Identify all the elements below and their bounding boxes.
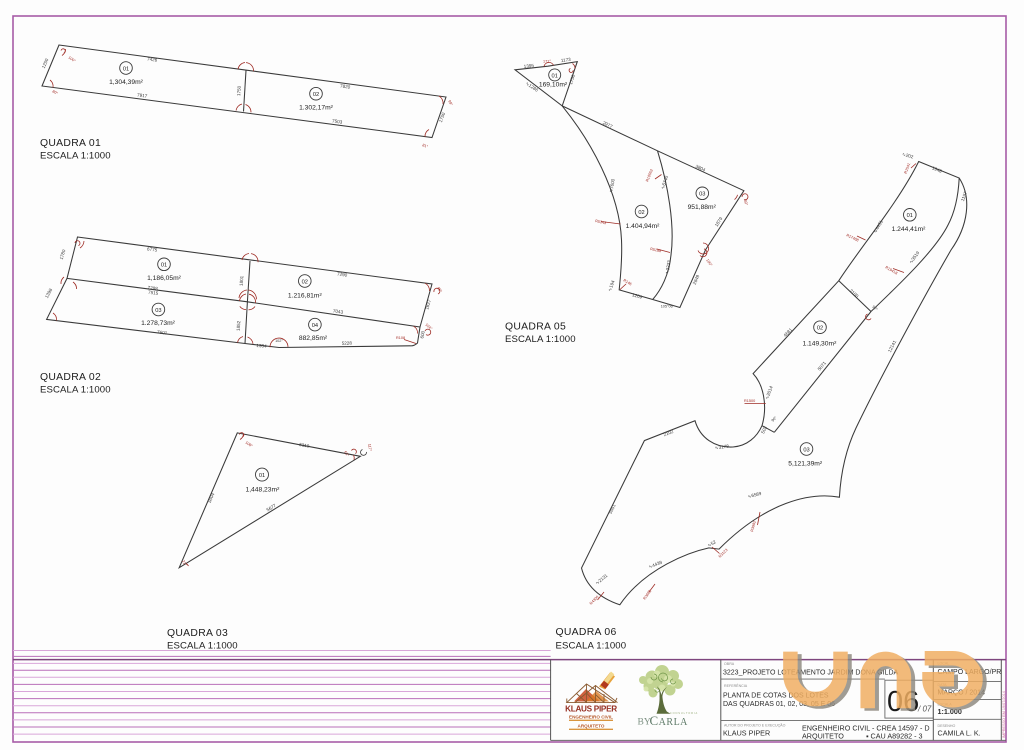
svg-text:1.149,30m²: 1.149,30m² xyxy=(802,341,837,348)
svg-text:1,186,05m²: 1,186,05m² xyxy=(147,275,182,282)
svg-text:1750: 1750 xyxy=(236,85,242,96)
svg-text:1.244,41m²: 1.244,41m² xyxy=(892,226,927,233)
svg-text:AUTOR DO PROJETO E EXECUÇÃO: AUTOR DO PROJETO E EXECUÇÃO xyxy=(724,723,786,728)
svg-text:01: 01 xyxy=(259,473,265,479)
svg-text:951,88m²: 951,88m² xyxy=(688,204,717,211)
svg-text:102°: 102° xyxy=(275,339,283,343)
svg-text:R1500: R1500 xyxy=(744,399,755,403)
svg-text:▪ CAU A89282 - 3: ▪ CAU A89282 - 3 xyxy=(866,732,923,741)
svg-text:1801: 1801 xyxy=(239,275,245,286)
svg-text:01: 01 xyxy=(161,263,167,269)
svg-text:02: 02 xyxy=(302,279,308,285)
svg-text:CONSULTORIA: CONSULTORIA xyxy=(670,711,698,715)
svg-text:QUADRA 05: QUADRA 05 xyxy=(505,322,566,333)
svg-text:04: 04 xyxy=(312,323,318,329)
svg-text:03: 03 xyxy=(155,308,161,314)
svg-text:105°06': 105°06' xyxy=(661,305,674,309)
svg-text:ESCALA 1:1000: ESCALA 1:1000 xyxy=(40,385,111,396)
svg-text:1,304,39m²: 1,304,39m² xyxy=(109,79,144,86)
svg-text:REFERÊNCIA: REFERÊNCIA xyxy=(724,683,748,688)
svg-text:1.302,17m²: 1.302,17m² xyxy=(299,105,334,112)
svg-text:02: 02 xyxy=(638,210,644,216)
svg-text:1.216,81m²: 1.216,81m² xyxy=(288,293,323,300)
svg-text:01: 01 xyxy=(552,73,558,79)
svg-text:ARQUITETO: ARQUITETO xyxy=(802,732,844,741)
svg-text:1334: 1334 xyxy=(256,343,267,349)
svg-text:03: 03 xyxy=(699,192,705,198)
svg-text:171°: 171° xyxy=(543,60,551,64)
svg-text:CAMILA L. K.: CAMILA L. K. xyxy=(938,729,981,738)
svg-text:QUADRA 06: QUADRA 06 xyxy=(556,627,617,638)
svg-text:KLAUS PIPER: KLAUS PIPER xyxy=(565,705,617,714)
svg-text:KLAUS PIPER: KLAUS PIPER xyxy=(723,729,770,738)
svg-text:882,85m²: 882,85m² xyxy=(299,335,328,342)
svg-text:OBRA: OBRA xyxy=(724,662,735,666)
svg-text:ESCALA 1:1000: ESCALA 1:1000 xyxy=(167,641,238,652)
svg-text:01: 01 xyxy=(123,66,129,72)
svg-text:1852: 1852 xyxy=(236,320,242,331)
svg-text:5,121,39m²: 5,121,39m² xyxy=(788,461,823,468)
svg-text:ENGENHEIRO CIVIL: ENGENHEIRO CIVIL xyxy=(569,715,613,720)
svg-text:ESCALA 1:1000: ESCALA 1:1000 xyxy=(505,334,576,345)
svg-text:01: 01 xyxy=(907,213,913,219)
svg-text:ARQUITETO: ARQUITETO xyxy=(578,723,605,728)
svg-text:/ 07: / 07 xyxy=(917,705,932,714)
svg-text:1,448,23m²: 1,448,23m² xyxy=(245,487,280,494)
svg-text:IMPRESSO EM 19/07/2014: IMPRESSO EM 19/07/2014 xyxy=(1002,691,1006,738)
svg-text:QUADRA 03: QUADRA 03 xyxy=(167,628,228,639)
svg-text:ESCALA 1:1000: ESCALA 1:1000 xyxy=(556,641,627,652)
svg-text:R108: R108 xyxy=(396,336,405,340)
svg-text:03: 03 xyxy=(803,447,809,453)
svg-text:1.278,73m²: 1.278,73m² xyxy=(141,320,176,327)
svg-text:02: 02 xyxy=(817,326,823,332)
svg-text:169,10m²: 169,10m² xyxy=(539,82,568,89)
svg-text:1.404,94m²: 1.404,94m² xyxy=(626,223,661,230)
svg-text:5228: 5228 xyxy=(342,341,353,346)
svg-text:DESENHO: DESENHO xyxy=(938,724,956,728)
svg-text:QUADRA 01: QUADRA 01 xyxy=(40,138,101,149)
svg-text:ESCALA 1:1000: ESCALA 1:1000 xyxy=(40,151,111,162)
svg-text:02: 02 xyxy=(313,92,319,98)
svg-text:QUADRA 02: QUADRA 02 xyxy=(40,372,101,383)
